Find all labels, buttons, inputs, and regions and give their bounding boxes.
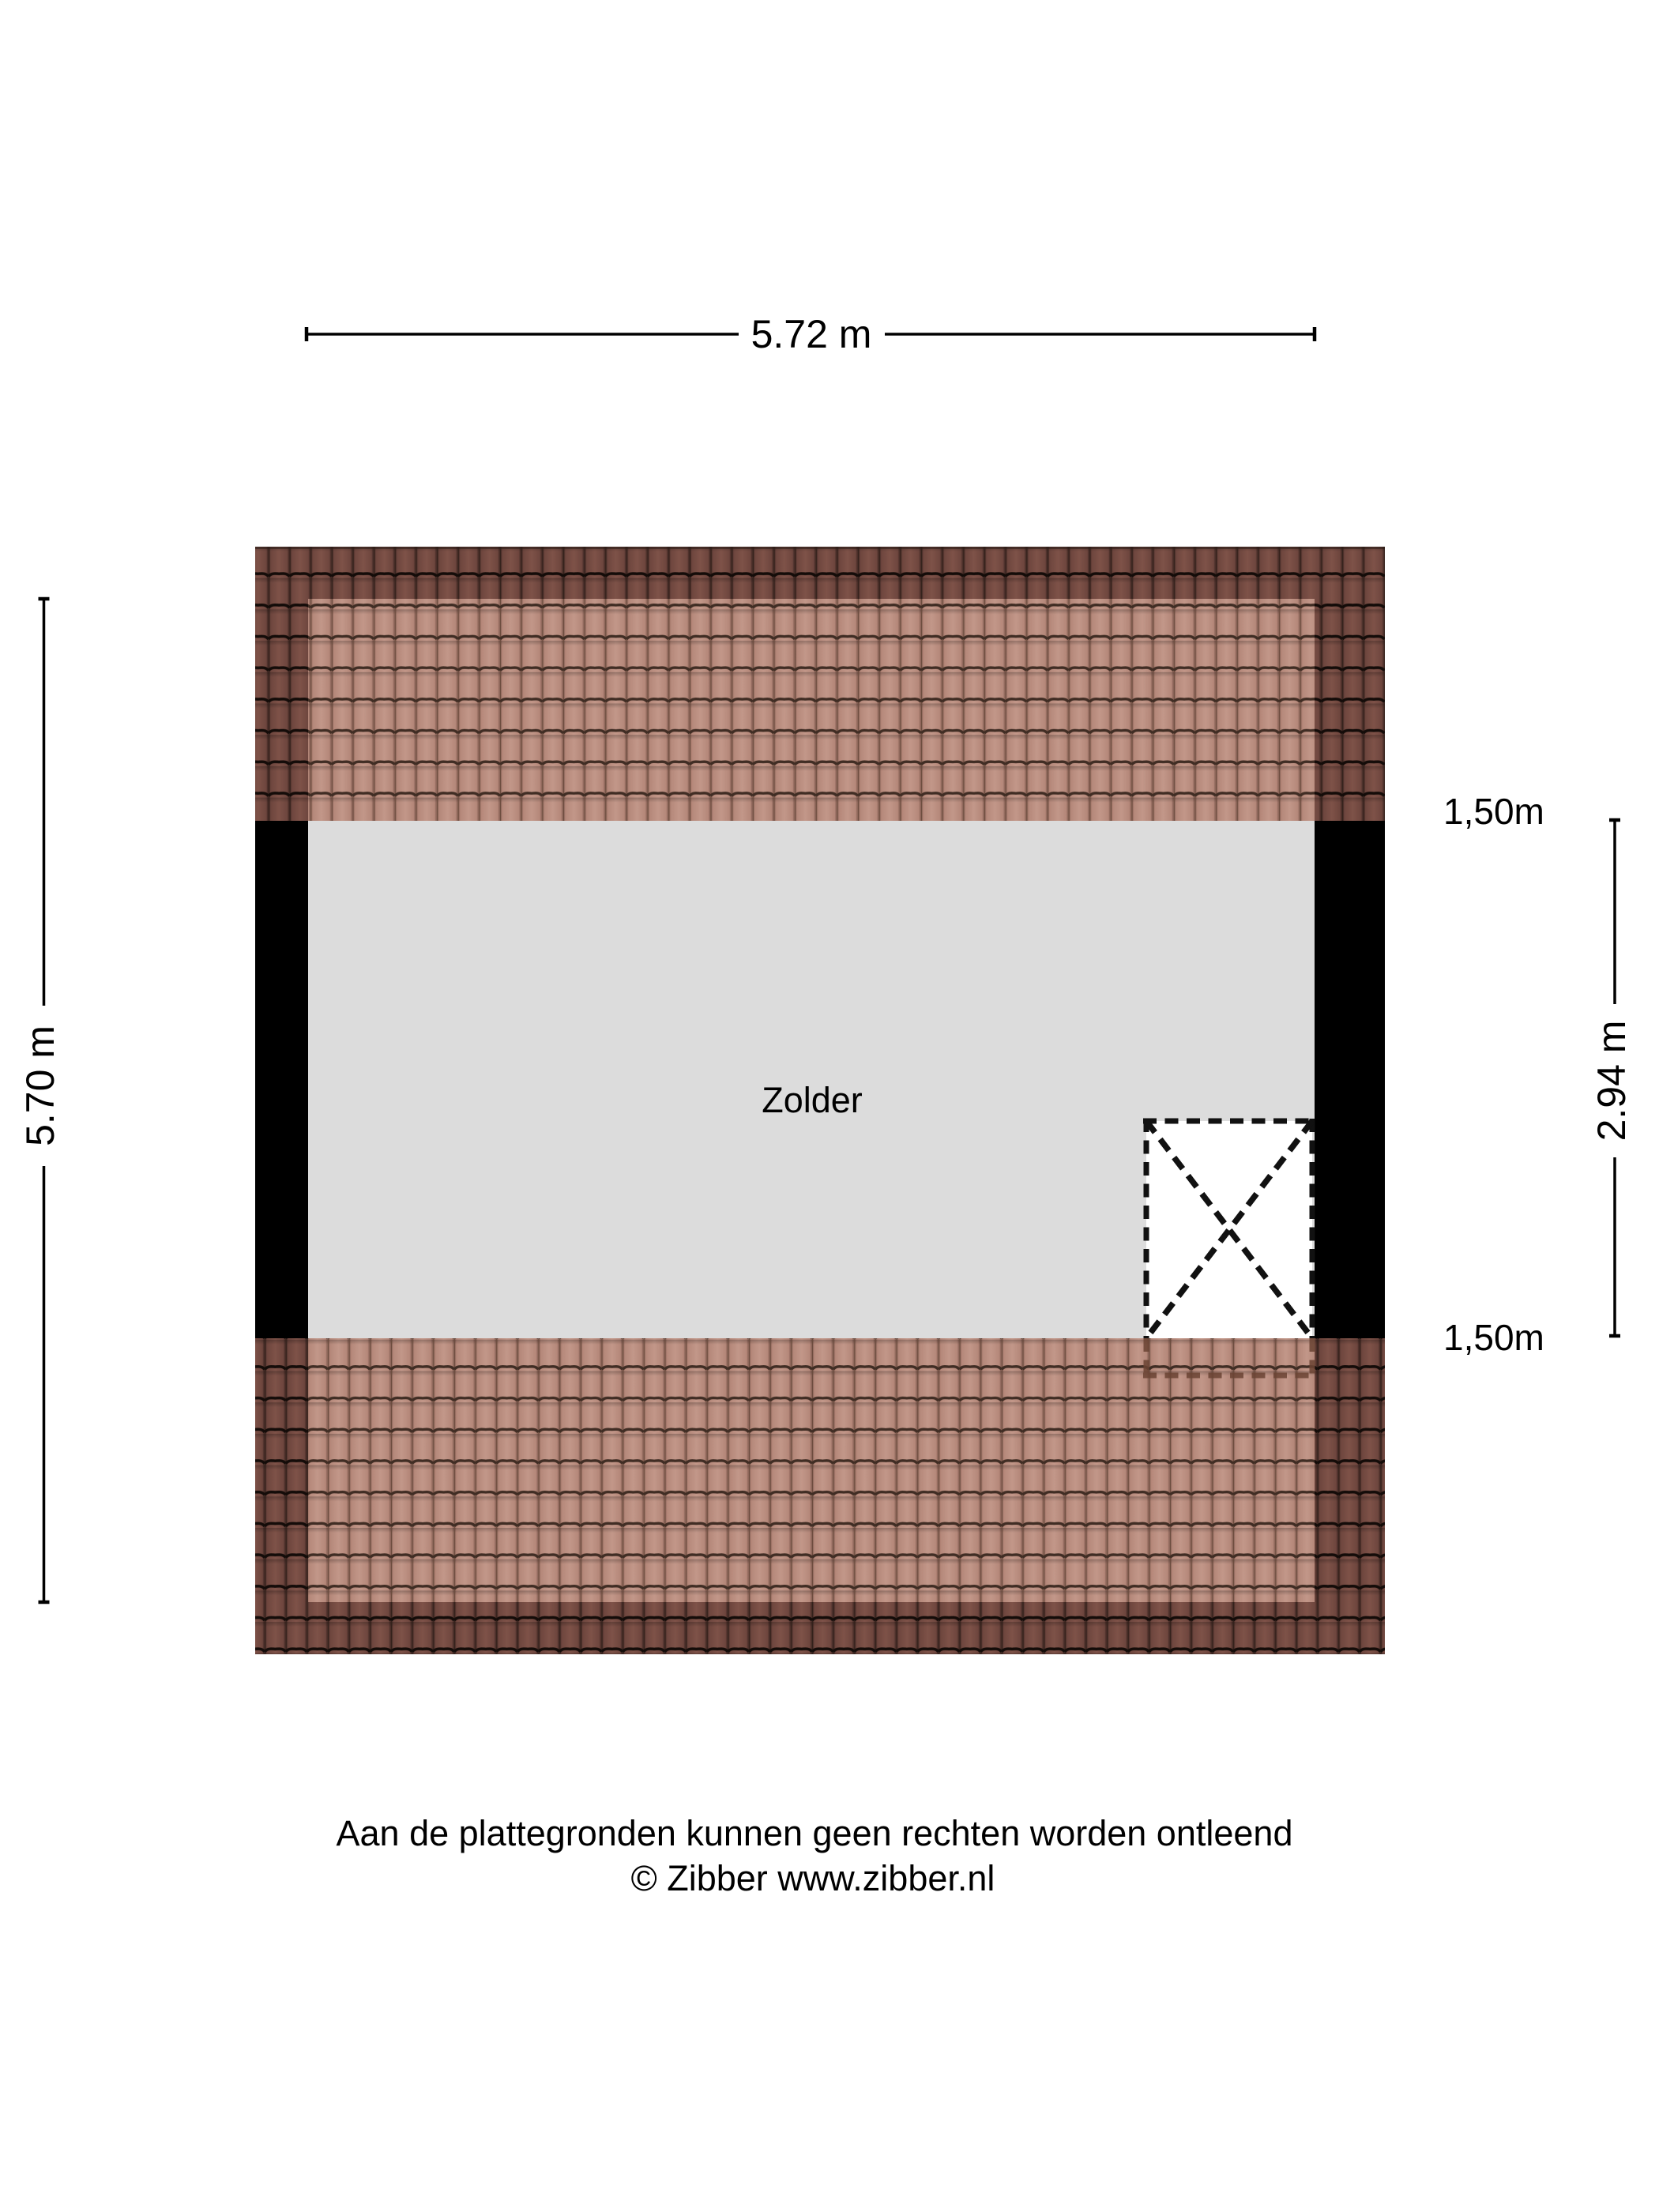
svg-text:Aan de plattegronden kunnen ge: Aan de plattegronden kunnen geen rechten…: [337, 1813, 1293, 1853]
svg-text:2.94 m: 2.94 m: [1589, 1021, 1634, 1142]
svg-text:© Zibber www.zibber.nl: © Zibber www.zibber.nl: [631, 1858, 995, 1898]
svg-text:5.70 m: 5.70 m: [18, 1025, 62, 1146]
svg-text:1,50m: 1,50m: [1443, 791, 1544, 832]
svg-text:1,50m: 1,50m: [1443, 1317, 1544, 1358]
svg-text:Zolder: Zolder: [762, 1080, 863, 1120]
svg-text:5.72 m: 5.72 m: [751, 312, 872, 356]
